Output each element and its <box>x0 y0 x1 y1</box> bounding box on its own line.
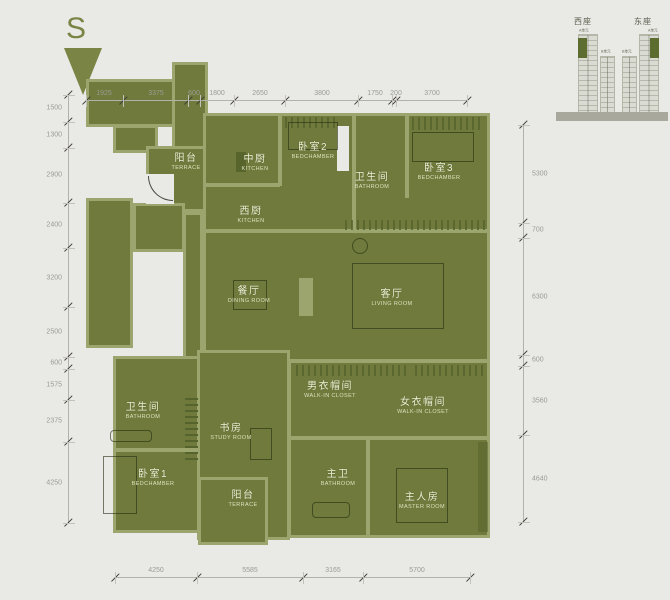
furniture-bathtub-master <box>312 502 350 518</box>
wardrobe-bed3 <box>412 117 484 130</box>
dimension-label: 5300 <box>532 171 548 178</box>
furniture-living-rug <box>352 263 444 329</box>
compass-south-label: S <box>66 12 86 46</box>
dimension-label: 1925 <box>96 90 112 97</box>
dimension-label: 1800 <box>209 90 225 97</box>
wall-bathroom-left <box>352 116 356 230</box>
keyplan-tower-east-b <box>622 56 637 114</box>
furniture-dining-table <box>233 280 267 310</box>
dimension-chain-left: 1500 1300 2900 2400 3200 2500 600 1575 2… <box>68 95 69 523</box>
dimension-label: 2650 <box>252 90 268 97</box>
dimension-label: 5585 <box>242 567 258 574</box>
dimension-label: 3200 <box>46 275 62 282</box>
dimension-chain-top: 1925 3375 600 1800 2650 3800 1750 200 37… <box>86 100 467 101</box>
dimension-label: 600 <box>532 357 544 364</box>
wall-kitchen-bed2 <box>278 116 282 186</box>
keyplan-west-block-label: 西座 <box>574 16 592 27</box>
dimension-label: 2375 <box>46 418 62 425</box>
stair-shaft-hatch <box>185 398 198 460</box>
dimension-label: 1750 <box>367 90 383 97</box>
dimension-label: 3700 <box>424 90 440 97</box>
keyplan-unit-b-west-label: B单元 <box>601 49 611 54</box>
wall-kitchens <box>206 183 280 187</box>
keyplan-highlight-west <box>578 38 587 58</box>
keyplan-unit-b-east-label: B单元 <box>622 49 632 54</box>
dimension-label: 3560 <box>532 398 548 405</box>
wall-closet-master-row <box>290 436 488 440</box>
plan-block-left-wing <box>86 198 133 348</box>
dimension-label: 3165 <box>325 567 341 574</box>
dimension-label: 4250 <box>46 480 62 487</box>
furniture-bed2 <box>288 122 338 150</box>
dimension-chain-right: 5300 700 6300 600 3560 4640 <box>523 125 524 522</box>
furniture-bed1 <box>103 456 137 514</box>
plan-block-terrace-lower <box>198 477 268 545</box>
cabinet-living-top <box>345 220 485 230</box>
plan-block-upper-left <box>86 79 185 127</box>
dimension-label: 2500 <box>46 329 62 336</box>
closet-shelf-female <box>415 365 485 376</box>
furniture-bed3 <box>412 132 474 162</box>
dimension-label: 600 <box>50 360 62 367</box>
dimension-label: 1300 <box>46 132 62 139</box>
lightwell-notch <box>337 126 349 171</box>
keyplan-unit-a-east-label: A单元 <box>648 28 658 33</box>
furniture-bathtub-1 <box>110 430 152 442</box>
kitchen-counter <box>236 152 246 172</box>
wardrobe-master <box>478 442 488 532</box>
furniture-side-table <box>352 238 368 254</box>
dimension-label: 600 <box>188 90 200 97</box>
closet-shelf-male <box>296 365 408 376</box>
furniture-study-desk <box>250 428 272 460</box>
dimension-label: 3375 <box>148 90 164 97</box>
floorplan-canvas: S 阳台TERRACE 中厨KITCHEN 卧室2B <box>0 0 670 600</box>
dimension-label: 700 <box>532 227 544 234</box>
keyplan-east-block-label: 东座 <box>634 16 652 27</box>
dimension-label: 2400 <box>46 222 62 229</box>
wall-bathroom-bed3 <box>405 116 409 198</box>
dimension-label: 3800 <box>314 90 330 97</box>
dimension-chain-bottom: 4250 5585 3165 5700 <box>115 577 470 578</box>
dimension-label: 1575 <box>46 382 62 389</box>
keyplan-ground-bar <box>556 112 668 121</box>
dimension-label: 4250 <box>148 567 164 574</box>
plan-block-shaft-column <box>183 212 203 362</box>
furniture-master-bed <box>396 468 448 523</box>
dimension-label: 6300 <box>532 294 548 301</box>
dimension-label: 2900 <box>46 172 62 179</box>
keyplan-unit-a-west-label: A单元 <box>579 28 589 33</box>
plan-block-hallway <box>133 203 185 252</box>
dimension-label: 1500 <box>46 105 62 112</box>
keyplan-tower-west-b <box>600 56 615 114</box>
keyplan-highlight-east <box>650 38 659 58</box>
dimension-label: 5700 <box>409 567 425 574</box>
wall-dining-living-pier <box>299 278 313 316</box>
dimension-label: 4640 <box>532 476 548 483</box>
wall-masterbath-master <box>366 440 370 535</box>
